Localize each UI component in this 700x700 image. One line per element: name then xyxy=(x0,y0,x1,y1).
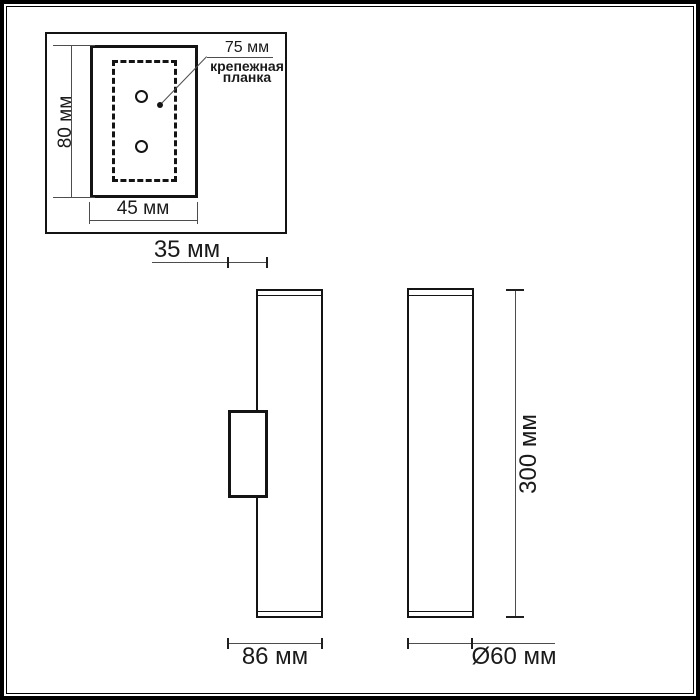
dim-75mm-label: 75 мм xyxy=(205,40,289,56)
callout-leader-dot xyxy=(157,102,163,108)
dim-300mm-tick-top xyxy=(506,289,524,291)
mounting-plate-dashed-outline xyxy=(112,60,177,182)
lamp-wall-bracket xyxy=(228,410,268,498)
callout-bracket-label: крепежная планка xyxy=(205,61,289,83)
front-view-bottom-cap-line xyxy=(409,611,472,612)
dim-80mm-label: 80 мм xyxy=(57,87,75,157)
lamp-front-view-body xyxy=(407,288,474,618)
dim-300mm-tick-bottom xyxy=(506,616,524,618)
dim-80mm-tick-top xyxy=(53,45,95,46)
dim-35mm-tick-right xyxy=(266,257,268,268)
dim-86mm-label: 86 мм xyxy=(225,646,325,668)
side-view-bottom-cap-line xyxy=(258,611,321,612)
dim-60mm-label: Ø60 мм xyxy=(454,646,574,668)
dim-45mm-tick-left xyxy=(89,202,90,224)
mounting-detail-inset: 80 мм 45 мм 75 мм крепежная планка xyxy=(45,32,287,234)
screw-hole-top xyxy=(135,90,148,103)
side-view-top-cap-line xyxy=(258,295,321,296)
screw-hole-bottom xyxy=(135,140,148,153)
dim-80mm-tick-bottom xyxy=(53,197,95,198)
dim-45mm-label: 45 мм xyxy=(103,200,183,218)
front-view-top-cap-line xyxy=(409,295,472,296)
dim-45mm-line xyxy=(89,220,198,221)
dim-300mm-label: 300 мм xyxy=(518,409,540,499)
dim-35mm-label: 35 мм xyxy=(137,239,237,261)
dim-60mm-tick-left xyxy=(407,638,409,649)
dim-45mm-tick-right xyxy=(197,202,198,224)
technical-drawing-canvas: 80 мм 45 мм 75 мм крепежная планка 35 мм… xyxy=(0,0,700,700)
